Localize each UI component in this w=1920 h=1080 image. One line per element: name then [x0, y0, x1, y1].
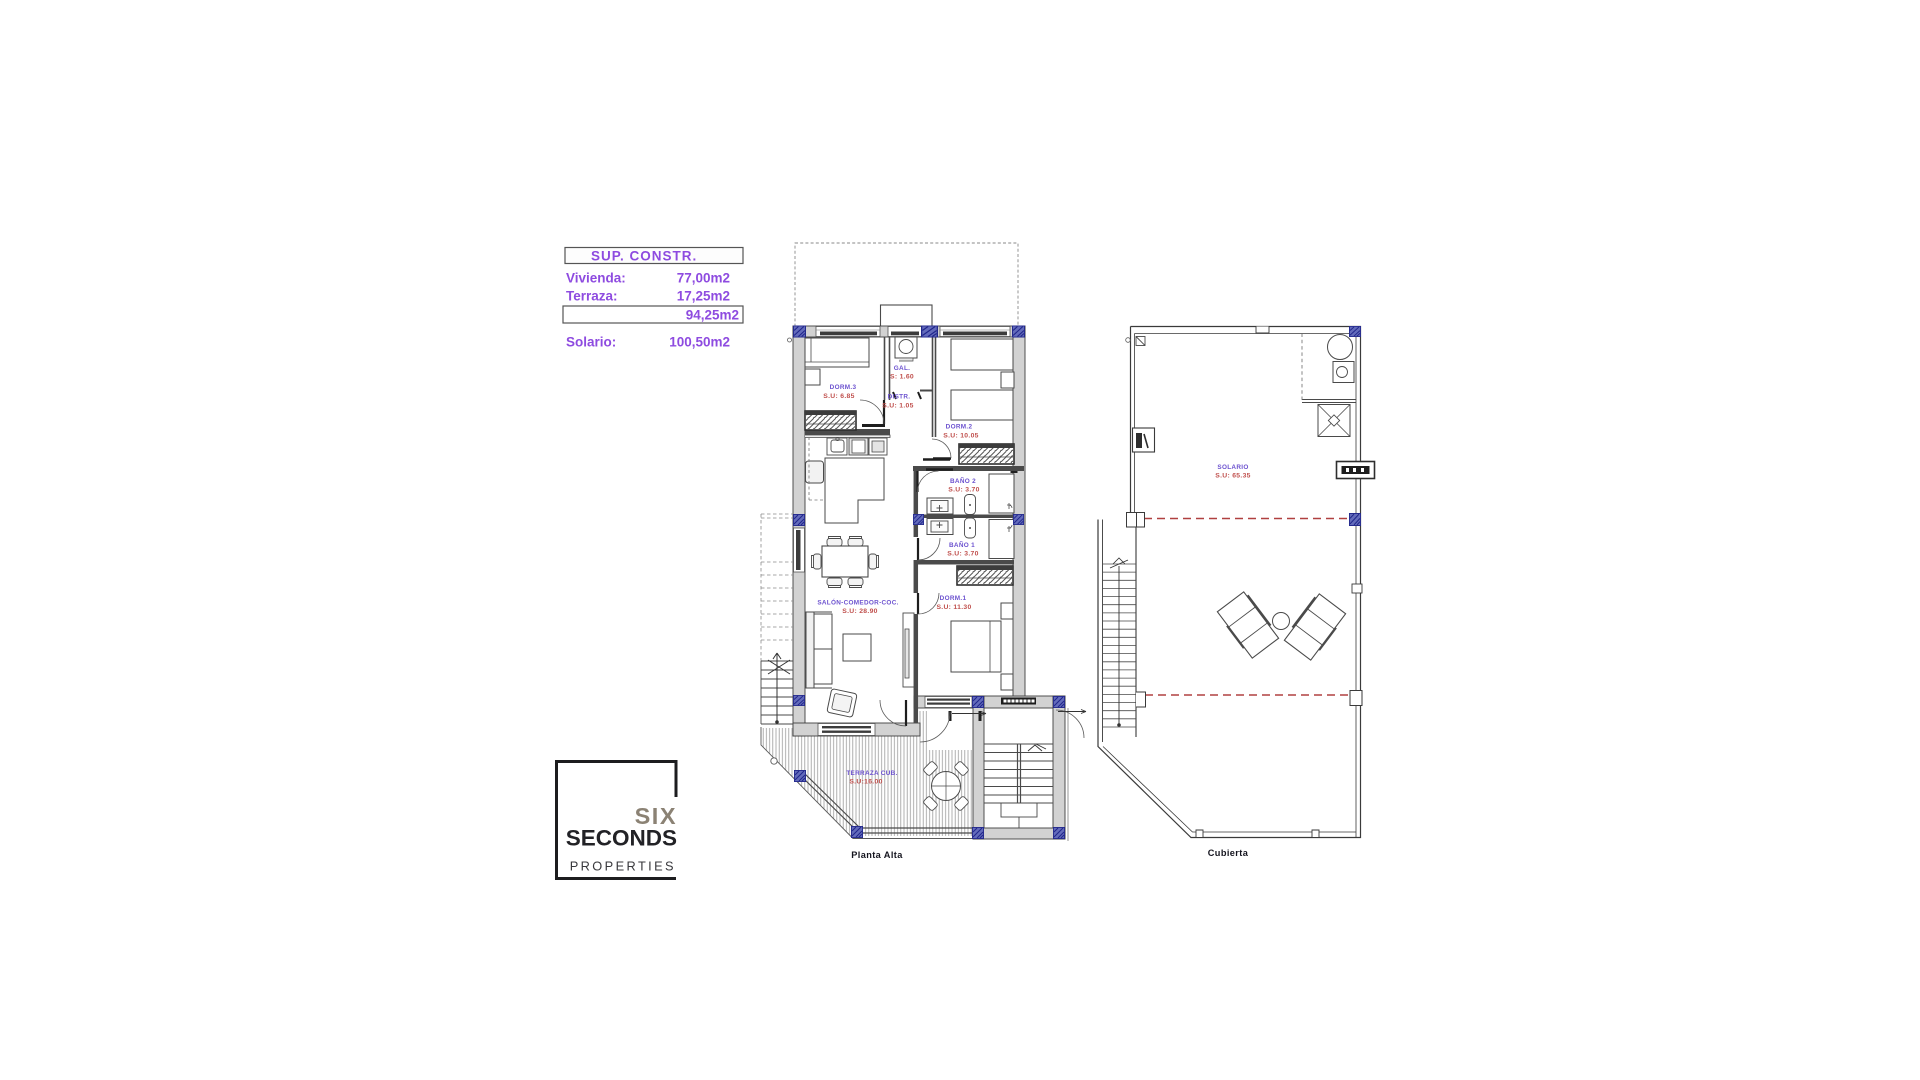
svg-text:S.U:16.00: S.U:16.00 [849, 779, 882, 786]
svg-text:GAL.: GAL. [894, 365, 910, 372]
svg-text:PROPERTIES: PROPERTIES [570, 859, 676, 874]
svg-text:S.U: 28.90: S.U: 28.90 [842, 608, 878, 615]
svg-text:94,25m2: 94,25m2 [686, 308, 739, 323]
svg-text:Vivienda:: Vivienda: [566, 271, 626, 286]
svg-text:TERRAZA CUB.: TERRAZA CUB. [846, 770, 897, 777]
svg-text:100,50m2: 100,50m2 [669, 335, 730, 350]
svg-text:DORM.1: DORM.1 [940, 595, 967, 602]
svg-text:S.U: 3.70: S.U: 3.70 [948, 487, 979, 494]
svg-text:S.U: 11.30: S.U: 11.30 [936, 604, 971, 611]
svg-text:DORM.3: DORM.3 [830, 384, 857, 391]
svg-text:77,00m2: 77,00m2 [677, 271, 730, 286]
svg-text:S.U: 10.05: S.U: 10.05 [943, 433, 979, 440]
svg-text:Solario:: Solario: [566, 335, 616, 350]
svg-text:DORM.2: DORM.2 [946, 424, 973, 431]
svg-text:17,25m2: 17,25m2 [677, 289, 730, 304]
svg-text:BAÑO 2: BAÑO 2 [950, 476, 976, 485]
svg-text:S.U: 1.05: S.U: 1.05 [882, 403, 913, 410]
svg-text:SALÓN-COMEDOR-COC.: SALÓN-COMEDOR-COC. [817, 598, 898, 607]
svg-text:SUP. CONSTR.: SUP. CONSTR. [591, 249, 697, 264]
svg-text:Cubierta: Cubierta [1208, 848, 1249, 858]
svg-text:Planta Alta: Planta Alta [851, 850, 903, 860]
svg-text:S.U: 65.35: S.U: 65.35 [1215, 473, 1251, 480]
svg-text:S.U: 3.70: S.U: 3.70 [947, 551, 978, 558]
svg-text:SECONDS: SECONDS [566, 826, 677, 851]
svg-text:DISTR.: DISTR. [888, 394, 911, 401]
svg-text:Terraza:: Terraza: [566, 289, 618, 304]
svg-text:S.U: 6.85: S.U: 6.85 [823, 393, 854, 400]
svg-text:SOLARIO: SOLARIO [1217, 464, 1248, 471]
svg-text:BAÑO 1: BAÑO 1 [949, 540, 975, 549]
svg-text:S: 1.60: S: 1.60 [890, 374, 914, 381]
